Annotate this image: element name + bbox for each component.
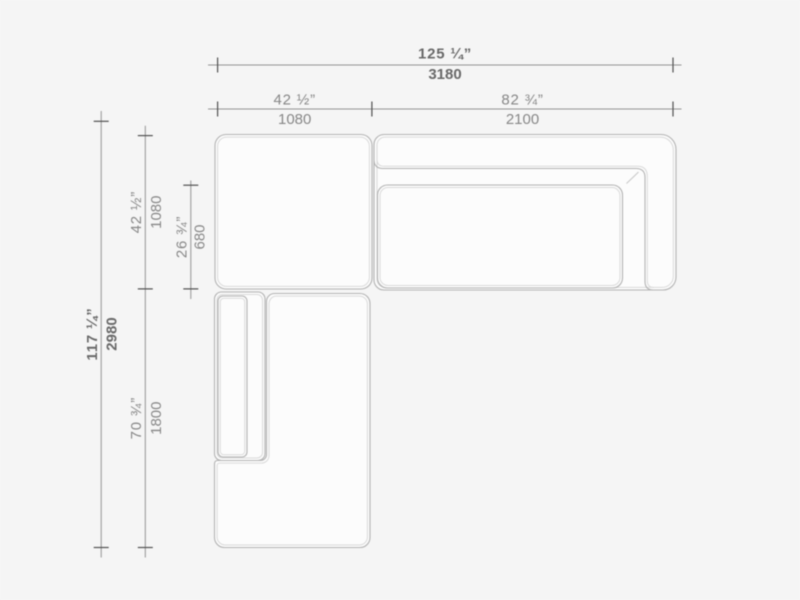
svg-text:1080: 1080 xyxy=(148,196,165,229)
svg-text:1080: 1080 xyxy=(278,111,311,128)
svg-text:3180: 3180 xyxy=(428,66,461,83)
svg-text:26 ¾”: 26 ¾” xyxy=(173,216,190,258)
svg-text:42 ½”: 42 ½” xyxy=(274,92,316,109)
svg-text:117 ¼”: 117 ¼” xyxy=(84,307,101,360)
svg-text:42 ½”: 42 ½” xyxy=(128,191,145,233)
svg-text:125 ¼”: 125 ¼” xyxy=(418,46,472,63)
svg-text:2980: 2980 xyxy=(104,317,121,350)
svg-text:82 ¾”: 82 ¾” xyxy=(501,92,543,109)
svg-text:70 ¾”: 70 ¾” xyxy=(128,397,145,439)
svg-text:680: 680 xyxy=(191,224,208,249)
svg-text:2100: 2100 xyxy=(506,111,539,128)
svg-text:1800: 1800 xyxy=(148,402,165,435)
